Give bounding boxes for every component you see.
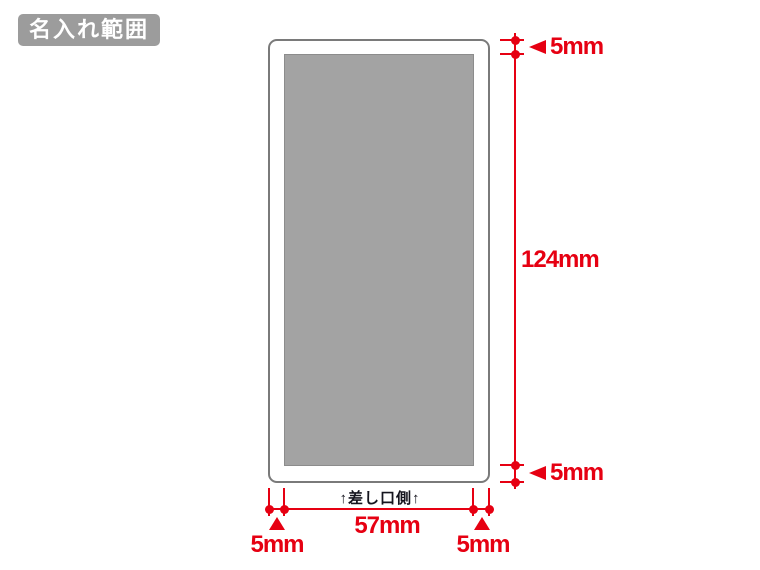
dimension-dot [485,505,494,514]
dimension-dot [511,36,520,45]
dimension-dot [265,505,274,514]
print-area [284,54,474,466]
dimension-dot [511,478,520,487]
bottom-dimension-line [268,508,490,510]
left-margin-label: 5mm [250,533,304,557]
right-margin-label: 5mm [456,533,510,557]
print-height-label: 124mm [521,248,599,272]
insert-side-label: ↑差し口側↑ [290,487,470,508]
right-dimension-line [514,33,516,489]
print-width-label: 57mm [347,514,427,538]
top-margin-label: 5mm [550,35,603,59]
dimension-dot [511,461,520,470]
right-margin-arrow-icon [474,517,490,530]
bottom-margin-arrow-icon [529,466,546,480]
bottom-margin-label: 5mm [550,461,603,485]
imprint-area-badge: 名入れ範囲 [18,14,160,46]
imprint-area-diagram: 名入れ範囲 5mm 124mm 5mm ↑差し口側↑ 57mm 5mm 5mm [0,0,760,570]
top-margin-arrow-icon [529,40,546,54]
dimension-dot [469,505,478,514]
dimension-dot [511,50,520,59]
left-margin-arrow-icon [269,517,285,530]
dimension-dot [280,505,289,514]
